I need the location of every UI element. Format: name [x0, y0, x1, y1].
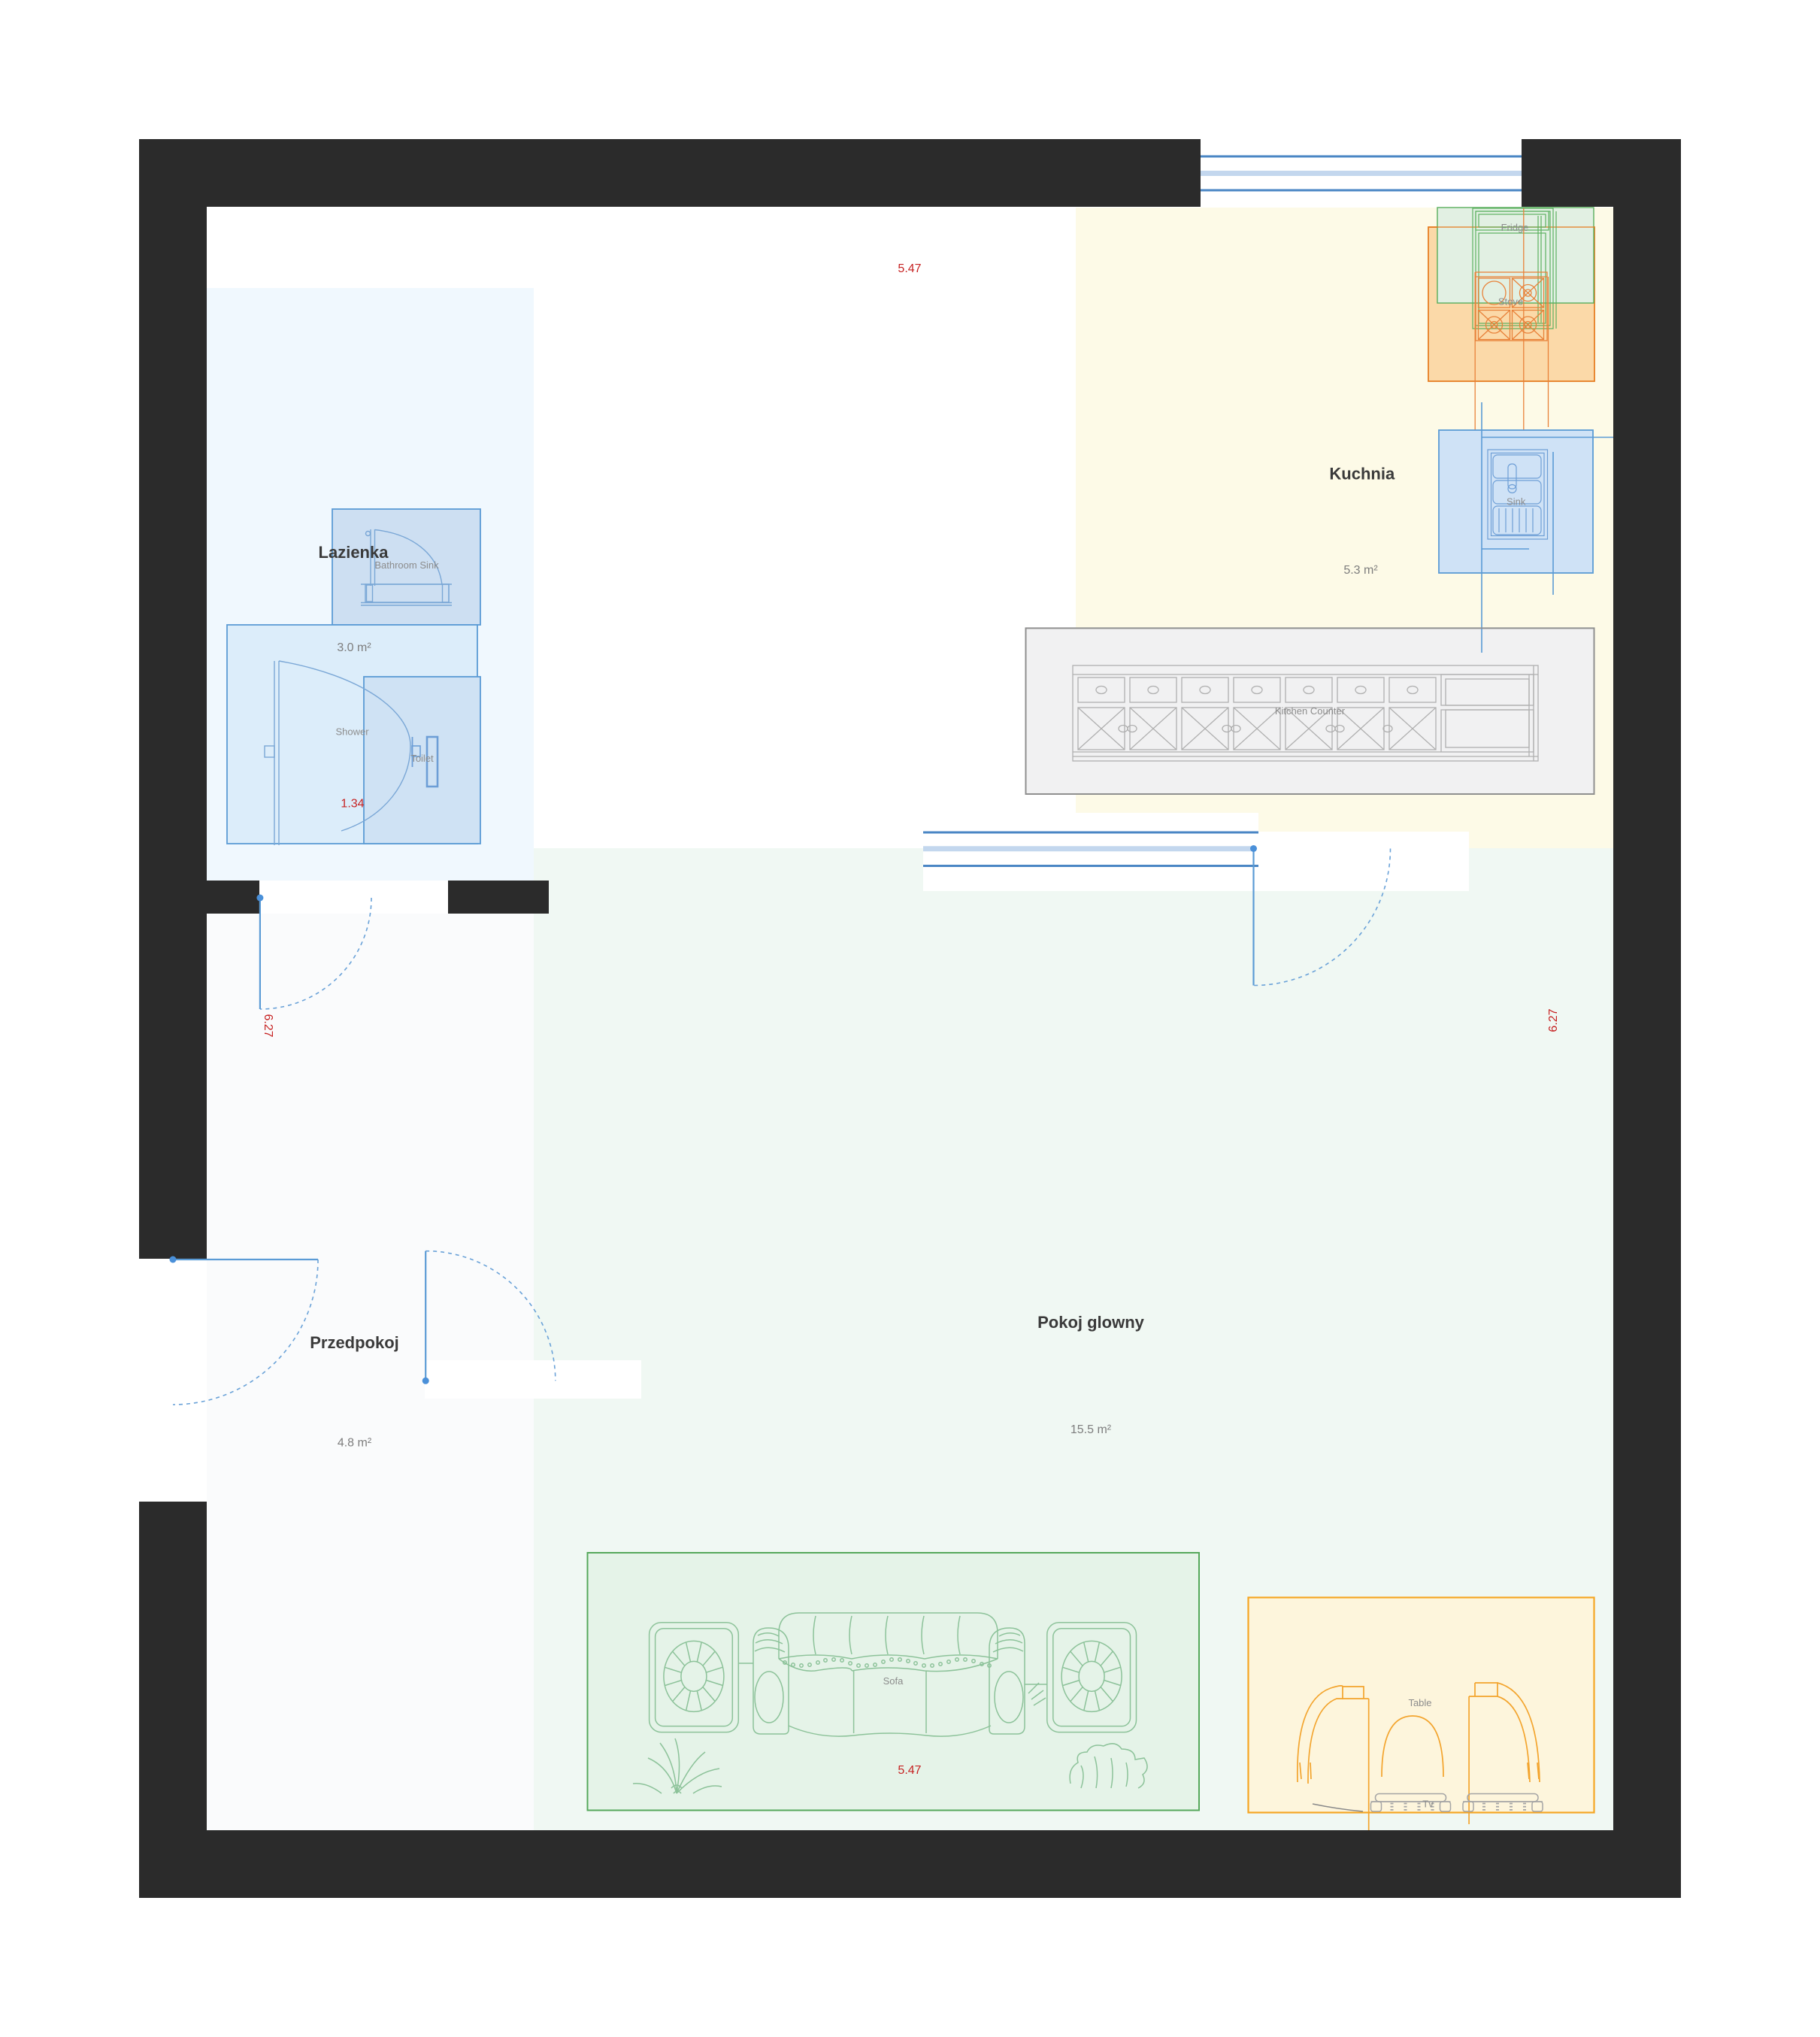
svg-text:Kuchnia: Kuchnia [1329, 465, 1395, 483]
svg-text:5.47: 5.47 [898, 1764, 921, 1777]
svg-text:1.34: 1.34 [341, 797, 364, 810]
svg-text:15.5 m²: 15.5 m² [1070, 1423, 1112, 1436]
svg-text:Pokoj glowny: Pokoj glowny [1037, 1313, 1145, 1332]
svg-text:4.8 m²: 4.8 m² [338, 1437, 372, 1450]
svg-text:5.3 m²: 5.3 m² [1343, 564, 1378, 577]
svg-text:Bathroom Sink: Bathroom Sink [374, 559, 439, 571]
svg-text:6.27: 6.27 [1547, 1008, 1560, 1032]
svg-text:Fridge: Fridge [1501, 222, 1529, 233]
svg-text:6.27: 6.27 [262, 1014, 274, 1037]
svg-text:3.0 m²: 3.0 m² [337, 641, 371, 654]
svg-text:Sofa: Sofa [883, 1675, 904, 1687]
svg-text:Przedpokoj: Przedpokoj [310, 1333, 399, 1352]
svg-text:Kitchen Counter: Kitchen Counter [1275, 705, 1346, 717]
svg-text:5.47: 5.47 [898, 262, 921, 275]
svg-text:Table: Table [1408, 1697, 1431, 1708]
svg-text:Tv: Tv [1422, 1799, 1434, 1810]
svg-text:Sink: Sink [1507, 496, 1526, 508]
svg-text:Shower: Shower [335, 726, 369, 738]
svg-text:Stove: Stove [1498, 296, 1523, 308]
svg-text:Toilet: Toilet [410, 753, 434, 764]
